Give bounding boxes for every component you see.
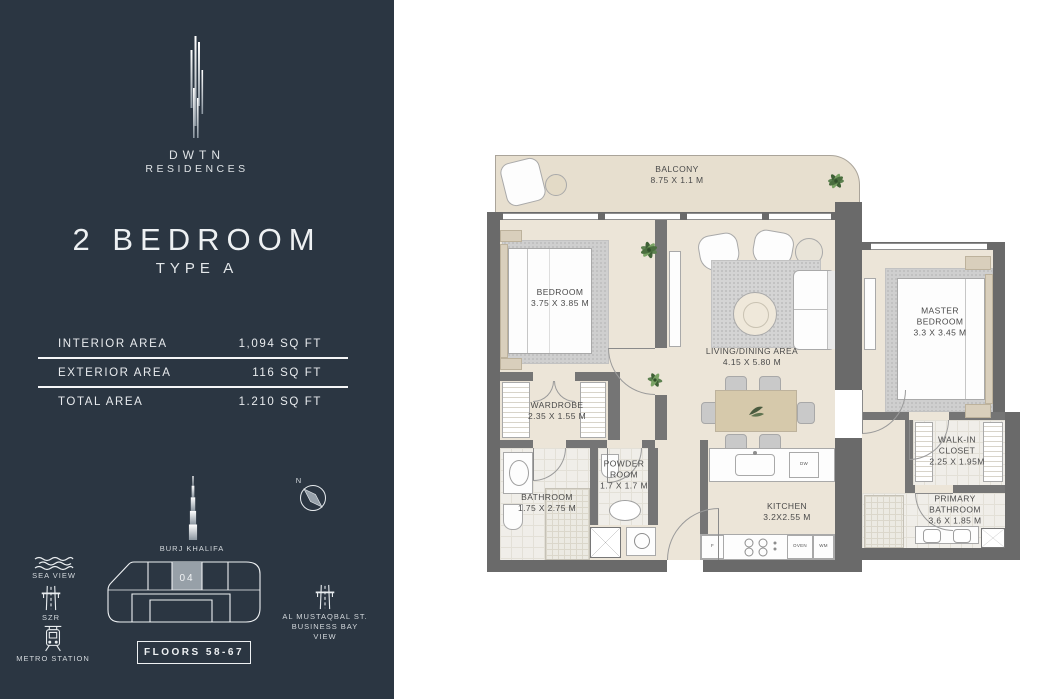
nightstand <box>965 404 991 418</box>
wall <box>608 372 620 440</box>
hob <box>737 536 783 558</box>
wall <box>905 485 915 493</box>
room-dims: 1.75 X 2.75 M <box>518 503 576 514</box>
room-name: POWDER ROOM <box>599 458 649 480</box>
washing-machine-drum <box>634 533 650 549</box>
brand-name-2: RESIDENCES <box>0 163 394 175</box>
wall <box>487 560 667 572</box>
room-label-kitchen: KITCHEN 3.2X2.55 M <box>763 501 810 523</box>
room-label-bathroom: BATHROOM 1.75 X 2.75 M <box>518 492 576 514</box>
room-label-master: MASTER BEDROOM 3.3 X 3.45 M <box>908 305 972 338</box>
room-dims: 2.35 X 1.55 M <box>528 411 586 422</box>
wall <box>642 440 655 448</box>
room-label-walkin: WALK-IN CLOSET 2.25 X 1.95M <box>928 434 986 467</box>
area-label: TOTAL AREA <box>58 396 143 408</box>
room-dims: 8.75 X 1.1 M <box>651 175 704 186</box>
primary-shower <box>864 495 904 548</box>
sofa-back <box>827 271 835 349</box>
coffee-table-inner <box>743 302 769 328</box>
area-value: 1,094 SQ FT <box>239 338 322 350</box>
room-label-balcony: BALCONY 8.75 X 1.1 M <box>651 164 704 186</box>
sea-view-icon <box>33 555 75 571</box>
area-label: EXTERIOR AREA <box>58 367 171 379</box>
bed-pillow-line <box>965 279 966 399</box>
closet-unit <box>983 422 1003 482</box>
area-label: INTERIOR AREA <box>58 338 168 350</box>
unit-plate-diagram: 04 <box>102 560 272 626</box>
side-table <box>545 174 567 196</box>
window <box>769 213 831 220</box>
washer-label: WM <box>813 543 834 548</box>
powder-basin <box>609 500 641 521</box>
street-view-label-1: AL MUSTAQBAL ST. <box>265 612 385 621</box>
street-highway-icon <box>314 584 336 610</box>
street-view-label-2: BUSINESS BAY <box>265 622 385 631</box>
room-label-living: LIVING/DINING AREA 4.15 X 5.80 M <box>706 346 798 368</box>
shaft <box>981 528 1005 548</box>
dresser <box>864 278 876 350</box>
sofa-cushion-line <box>794 309 827 310</box>
primary-sink <box>923 529 941 543</box>
room-name: LIVING/DINING AREA <box>706 346 798 357</box>
bed-headboard <box>500 244 508 358</box>
window <box>871 243 987 250</box>
tv-console <box>669 251 681 347</box>
plant-icon <box>821 164 851 198</box>
room-dims: 2.25 X 1.95M <box>928 457 986 468</box>
brand-tower-icon <box>166 36 226 142</box>
wardrobe-unit <box>502 382 530 438</box>
room-name: KITCHEN <box>763 501 810 512</box>
room-dims: 4.15 X 5.80 M <box>706 357 798 368</box>
wall <box>835 438 862 572</box>
table-row: TOTAL AREA 1.210 SQ FT <box>38 388 348 415</box>
wall <box>953 485 1005 493</box>
wall <box>487 212 500 572</box>
sidebar: DWTN RESIDENCES 2 BEDROOM TYPE A INTERIO… <box>0 0 394 699</box>
page-subtitle: TYPE A <box>0 260 394 277</box>
wall <box>590 448 598 525</box>
sea-view-label: SEA VIEW <box>14 571 94 580</box>
plant-icon <box>633 232 665 268</box>
room-dims: 1.7 X 1.7 M <box>599 481 649 492</box>
szr-label: SZR <box>21 613 81 622</box>
room-label-bedroom: BEDROOM 3.75 X 3.85 M <box>531 287 589 309</box>
primary-sink <box>953 529 971 543</box>
street-view-label-3: VIEW <box>265 632 385 641</box>
kitchen-sink <box>735 454 775 476</box>
window <box>605 213 680 220</box>
fridge-label: F <box>701 543 724 548</box>
brand-name: DWTN <box>0 148 394 162</box>
floorplan: DW F OVEN WM <box>487 148 1040 578</box>
room-name: BALCONY <box>651 164 704 175</box>
burj-khalifa-label: BURJ KHALIFA <box>132 544 252 553</box>
dishwasher-label: DW <box>789 461 819 466</box>
wall <box>500 440 533 448</box>
floors-badge: FLOORS 58-67 <box>137 641 251 664</box>
room-name: BEDROOM <box>531 287 589 298</box>
wall <box>835 202 862 390</box>
dining-chair <box>797 402 815 424</box>
page: DWTN RESIDENCES 2 BEDROOM TYPE A INTERIO… <box>0 0 1059 699</box>
wall <box>566 440 607 448</box>
burj-khalifa-icon <box>186 476 200 540</box>
area-table: INTERIOR AREA 1,094 SQ FT EXTERIOR AREA … <box>38 330 348 415</box>
area-value: 116 SQ FT <box>252 367 322 379</box>
bathroom-sink <box>509 460 529 486</box>
room-name: WALK-IN CLOSET <box>928 434 986 456</box>
wall <box>500 372 533 381</box>
master-bed <box>897 278 985 400</box>
window <box>687 213 762 220</box>
bed-pillow-line <box>527 249 528 353</box>
nightstand <box>500 230 522 242</box>
room-label-primary-bath: PRIMARY BATHROOM 3.6 X 1.85 M <box>920 493 990 526</box>
room-name: WARDROBE <box>528 400 586 411</box>
shaft <box>590 527 621 558</box>
page-title: 2 BEDROOM <box>0 222 394 258</box>
room-name: BATHROOM <box>518 492 576 503</box>
wall <box>655 395 667 440</box>
room-dims: 3.75 X 3.85 M <box>531 298 589 309</box>
wall <box>1005 412 1020 560</box>
nightstand <box>965 256 991 270</box>
room-dims: 3.3 X 3.45 M <box>908 328 972 339</box>
room-dims: 3.6 X 1.85 M <box>920 516 990 527</box>
area-value: 1.210 SQ FT <box>239 396 322 408</box>
plant-icon <box>641 364 669 396</box>
table-centerpiece <box>745 403 767 419</box>
compass-icon <box>296 481 330 515</box>
room-label-wardrobe: WARDROBE 2.35 X 1.55 M <box>528 400 586 422</box>
bed-headboard <box>985 274 993 404</box>
unit-number: 04 <box>179 573 194 584</box>
room-label-powder: POWDER ROOM 1.7 X 1.7 M <box>599 458 649 491</box>
oven-label: OVEN <box>787 543 813 548</box>
wall <box>862 548 1020 560</box>
table-row: INTERIOR AREA 1,094 SQ FT <box>38 330 348 359</box>
window <box>503 213 598 220</box>
wall <box>993 242 1005 420</box>
szr-highway-icon <box>40 585 62 611</box>
wall <box>648 448 658 525</box>
table-row: EXTERIOR AREA 116 SQ FT <box>38 359 348 388</box>
faucet <box>753 451 757 455</box>
metro-station-icon <box>41 624 65 652</box>
room-name: MASTER BEDROOM <box>908 305 972 327</box>
metro-station-label: METRO STATION <box>2 654 104 663</box>
room-name: PRIMARY BATHROOM <box>920 493 990 515</box>
nightstand <box>500 358 522 370</box>
room-dims: 3.2X2.55 M <box>763 512 810 523</box>
